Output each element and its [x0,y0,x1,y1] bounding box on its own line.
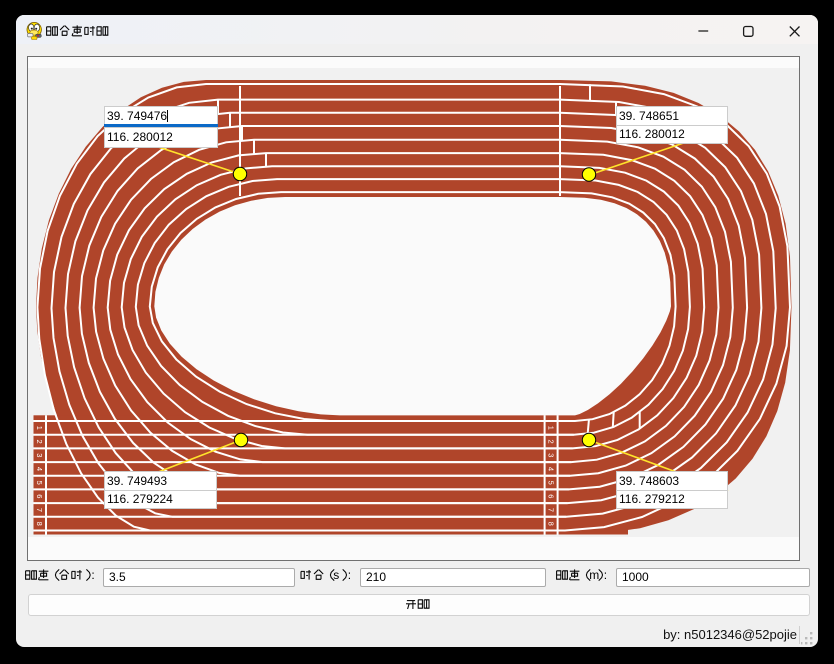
svg-text::: : [91,568,94,582]
svg-text:2: 2 [35,440,44,444]
svg-text:s: s [333,568,339,582]
svg-text:2: 2 [546,440,555,444]
svg-text:5: 5 [35,481,44,485]
svg-text::: : [604,568,607,582]
svg-text:4: 4 [35,467,44,471]
svg-text::: : [348,568,351,582]
svg-text:1: 1 [35,426,44,430]
svg-text:m: m [589,568,599,582]
svg-text:4: 4 [546,467,555,471]
svg-text:5: 5 [546,481,555,485]
svg-text:7: 7 [546,508,555,512]
svg-text:3: 3 [546,453,555,457]
svg-text:8: 8 [35,522,44,526]
svg-text:8: 8 [546,522,555,526]
svg-text:3: 3 [35,453,44,457]
svg-text:7: 7 [35,508,44,512]
svg-text:6: 6 [546,494,555,498]
svg-text:1: 1 [546,426,555,430]
svg-text:6: 6 [35,494,44,498]
